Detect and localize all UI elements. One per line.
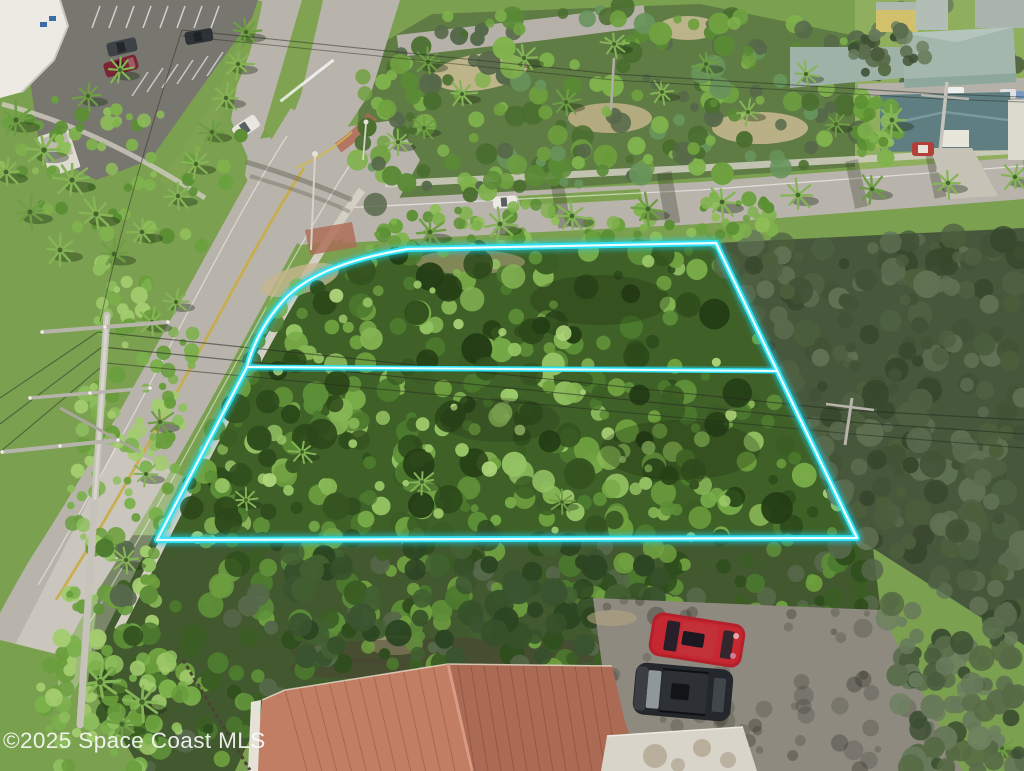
driveway-shadow (619, 596, 628, 605)
canopy-blob (178, 403, 187, 412)
canopy-blob (156, 111, 164, 119)
palm-crown (93, 211, 98, 216)
canopy-blob (309, 521, 320, 532)
canopy-blob (422, 181, 433, 192)
canopy-blob (75, 123, 84, 132)
driveway-shadow (859, 670, 868, 679)
canopy-blob (501, 264, 525, 288)
canopy-blob (816, 130, 833, 147)
driveway-shadow (864, 610, 870, 616)
driveway-shadow (603, 603, 612, 612)
canopy-blob (63, 664, 75, 676)
insulator (148, 386, 151, 389)
canopy-blob (539, 578, 567, 606)
canopy-blob (251, 669, 264, 682)
canopy-blob (263, 473, 277, 487)
canopy-blob (481, 619, 509, 647)
canopy-blob (726, 222, 740, 236)
canopy-blob (909, 629, 924, 644)
canopy-blob (1000, 647, 1022, 669)
driveway-shadow (787, 750, 798, 761)
canopy-blob (777, 459, 787, 469)
palm-frond (142, 702, 143, 722)
canopy-blob (627, 137, 645, 155)
garage-doors (941, 130, 969, 147)
canopy-blob (124, 477, 132, 485)
canopy-blob (361, 640, 375, 654)
canopy-blob (495, 10, 507, 22)
aerial-photo-canvas: ©2025 Space Coast MLS (0, 0, 1024, 771)
palm-crown (460, 92, 464, 96)
canopy-blob (455, 443, 469, 457)
canopy-blob (1003, 710, 1020, 727)
canopy-blob (217, 159, 231, 173)
canopy-blob (642, 255, 654, 267)
canopy-blob (295, 645, 318, 668)
canopy-blob (400, 72, 418, 90)
canopy-blob (407, 210, 419, 222)
canopy-blob (673, 114, 685, 126)
canopy-blob (613, 553, 634, 574)
canopy-blob (136, 417, 144, 425)
canopy-blob (364, 193, 387, 216)
canopy-blob (42, 203, 53, 214)
canopy-blob (218, 175, 233, 190)
canopy-blob (508, 309, 524, 325)
canopy-blob (483, 171, 502, 190)
palm-crown (224, 96, 228, 100)
canopy-blob (429, 287, 435, 293)
canopy-blob (861, 68, 870, 77)
canopy-blob (110, 584, 133, 607)
canopy-blob (90, 383, 98, 391)
canopy-blob (181, 624, 207, 650)
canopy-blob (256, 390, 280, 414)
palm-crown (210, 130, 214, 134)
canopy-blob (148, 548, 160, 560)
canopy-blob (169, 600, 181, 612)
canopy-blob (482, 461, 498, 477)
palm-crown (834, 122, 838, 126)
canopy-blob (433, 508, 443, 518)
canopy-blob (728, 17, 741, 30)
canopy-blob (313, 410, 321, 418)
canopy-blob (544, 342, 556, 354)
canopy-blob (329, 289, 343, 303)
parked-car (1016, 91, 1024, 99)
canopy-blob (159, 383, 166, 390)
canopy-blob (186, 327, 200, 341)
canopy-blob (205, 470, 218, 483)
canopy-blob (247, 583, 270, 606)
canopy-blob (551, 217, 560, 226)
canopy-blob (101, 645, 113, 657)
yellow-house-roof (876, 2, 918, 10)
suv-sunroof (670, 683, 689, 701)
canopy-blob (572, 156, 585, 169)
canopy-blob (76, 423, 90, 437)
canopy-blob (454, 207, 462, 215)
canopy-blob (788, 452, 801, 465)
canopy-blob (710, 99, 718, 107)
canopy-blob (72, 603, 81, 612)
palm-crown (58, 248, 63, 253)
canopy-blob (982, 617, 1005, 640)
canopy-blob (723, 378, 752, 407)
canopy-blob (766, 542, 781, 557)
driveway-shadow (831, 629, 838, 636)
black-suv (632, 662, 734, 722)
canopy-blob (144, 179, 156, 191)
canopy-blob (291, 502, 303, 514)
canopy-blob (469, 133, 479, 143)
canopy-blob (355, 135, 371, 151)
canopy-blob (904, 602, 922, 620)
canopy-blob (719, 495, 731, 507)
canopy-blob (180, 228, 192, 240)
canopy-blob (463, 187, 478, 202)
canopy-blob (974, 700, 996, 722)
palm-crown (498, 222, 503, 227)
canopy-blob (376, 411, 390, 425)
palm-frond (509, 58, 524, 59)
canopy-blob (513, 23, 525, 35)
canopy-blob (460, 287, 484, 311)
canopy-blob (471, 504, 479, 512)
canopy-blob (460, 30, 468, 38)
driveway-shadow (795, 735, 806, 746)
palm-frond (30, 194, 31, 212)
palm-frond (781, 195, 798, 196)
palm-crown (236, 62, 240, 66)
canopy-blob (916, 41, 929, 54)
driveway-shadow (864, 685, 880, 701)
canopy-blob (690, 103, 699, 112)
canopy-blob (768, 475, 778, 485)
canopy-blob (109, 293, 122, 306)
palm-crown (746, 110, 750, 114)
canopy-blob (373, 286, 384, 297)
canopy-blob (860, 34, 869, 43)
canopy-blob (633, 231, 641, 239)
canopy-blob (558, 8, 569, 19)
canopy-blob (926, 672, 945, 691)
canopy-blob (36, 683, 45, 692)
palm-crown (660, 90, 664, 94)
canopy-blob (427, 74, 442, 89)
blue-sign (49, 16, 56, 21)
canopy-blob (444, 154, 460, 170)
canopy-blob (375, 481, 385, 491)
canopy-blob (378, 100, 397, 119)
canopy-blob (347, 150, 368, 171)
palm-crown (422, 126, 426, 130)
driveway-shadow (844, 740, 864, 760)
canopy-blob (124, 498, 135, 509)
canopy-blob (413, 589, 432, 608)
palm-crown (86, 94, 90, 98)
canopy-blob (108, 366, 125, 383)
canopy-blob (908, 673, 923, 688)
canopy-blob (676, 292, 701, 317)
palm-crown (69, 177, 74, 182)
canopy-blob (708, 13, 730, 35)
canopy-blob (610, 113, 631, 134)
canopy-blob (943, 696, 961, 714)
canopy-blob (580, 389, 586, 395)
canopy-blob (877, 149, 895, 167)
canopy-blob (748, 206, 759, 217)
canopy-blob (592, 385, 607, 400)
driveway-shadow (756, 746, 763, 753)
canopy-blob (696, 223, 708, 235)
canopy-blob (416, 417, 430, 431)
white-wall (1008, 100, 1024, 160)
canopy-blob (408, 492, 434, 518)
palm-crown (570, 214, 575, 219)
palm-crown (119, 721, 124, 726)
canopy-blob (170, 463, 181, 474)
palm-frond (722, 202, 723, 219)
canopy-blob (639, 477, 652, 490)
canopy-blob (434, 25, 448, 39)
canopy-blob (607, 216, 620, 229)
canopy-blob (42, 658, 58, 674)
canopy-blob (984, 751, 1004, 771)
canopy-blob (442, 11, 453, 22)
canopy-blob (117, 303, 129, 315)
canopy-blob (95, 539, 114, 558)
streetlight-head (364, 120, 369, 125)
driveway-shadow (860, 752, 877, 769)
driveway-shadow (797, 706, 814, 723)
canopy-blob (209, 573, 234, 598)
canopy-blob (493, 104, 505, 116)
canopy-blob (414, 281, 422, 289)
canopy-blob (673, 15, 681, 23)
canopy-blob (126, 139, 138, 151)
canopy-blob (457, 172, 472, 187)
canopy-blob (728, 108, 741, 121)
canopy-blob (84, 456, 94, 466)
canopy-blob (545, 613, 566, 634)
canopy-shadow (530, 275, 670, 325)
canopy-blob (597, 164, 609, 176)
canopy-blob (125, 488, 133, 496)
canopy-blob (756, 96, 765, 105)
canopy-blob (296, 308, 307, 319)
canopy-blob (171, 686, 189, 704)
far-right-roof (975, 0, 1024, 28)
canopy-blob (867, 143, 876, 152)
canopy-blob (924, 737, 945, 758)
canopy-blob (189, 187, 198, 196)
canopy-blob (55, 202, 68, 215)
canopy-blob (734, 575, 746, 587)
canopy-blob (264, 621, 278, 635)
canopy-blob (794, 21, 812, 39)
canopy-blob (854, 95, 868, 109)
canopy-blob (96, 297, 109, 310)
canopy-blob (76, 518, 90, 532)
canopy-blob (288, 613, 312, 637)
canopy-blob (155, 441, 163, 449)
insulator (88, 391, 91, 394)
canopy-blob (497, 143, 513, 159)
canopy-blob (456, 574, 477, 595)
canopy-blob (99, 226, 115, 242)
driveway-shadow (660, 716, 667, 723)
canopy-blob (283, 485, 294, 496)
palm-crown (41, 147, 47, 153)
canopy-blob (247, 426, 272, 451)
canopy-blob (529, 251, 543, 265)
canopy-blob (51, 96, 59, 104)
canopy-blob (360, 327, 383, 350)
canopy-blob (146, 714, 160, 728)
canopy-blob (66, 591, 73, 598)
canopy-blob (909, 718, 931, 740)
watermark-text: ©2025 Space Coast MLS (3, 728, 266, 753)
canopy-blob (467, 234, 476, 243)
canopy-blob (541, 203, 556, 218)
canopy-blob (137, 114, 151, 128)
canopy-blob (165, 650, 178, 663)
canopy-blob (32, 167, 39, 174)
canopy-blob (648, 507, 659, 518)
canopy-blob (640, 224, 648, 232)
insulator (166, 320, 169, 323)
palm-crown (428, 230, 433, 235)
canopy-blob (323, 493, 351, 521)
canopy-blob (140, 586, 159, 605)
canopy-blob (807, 506, 818, 517)
canopy-blob (362, 490, 377, 505)
canopy-blob (363, 456, 376, 469)
canopy-blob (67, 502, 75, 510)
driveway-shadow (753, 726, 763, 736)
palm-crown (28, 210, 33, 215)
canopy-blob (763, 202, 775, 214)
canopy-blob (556, 325, 572, 341)
canopy-blob (45, 689, 63, 707)
palm-crown (946, 181, 950, 185)
insulator (28, 396, 31, 399)
canopy-blob (643, 154, 653, 164)
palm-crown (704, 62, 708, 66)
canopy-blob (610, 10, 627, 27)
canopy-blob (507, 155, 527, 175)
canopy-blob (358, 86, 373, 101)
canopy-blob (687, 142, 700, 155)
canopy-blob (498, 328, 506, 336)
canopy-blob (1003, 687, 1014, 698)
canopy-blob (74, 400, 88, 414)
canopy-blob (403, 480, 410, 487)
streetlight-head (312, 151, 318, 157)
canopy-blob (93, 603, 105, 615)
canopy-blob (799, 160, 809, 170)
canopy-blob (508, 343, 522, 357)
driveway-shadow (786, 609, 796, 619)
canopy-blob (145, 152, 156, 163)
canopy-blob (390, 318, 407, 335)
canopy-blob (207, 652, 228, 673)
canopy-blob (71, 464, 85, 478)
canopy-blob (599, 410, 609, 420)
canopy-blob (358, 511, 375, 528)
roof-stain (643, 744, 667, 768)
palm-crown (4, 170, 9, 175)
canopy-blob (432, 213, 445, 226)
canopy-blob (240, 628, 259, 647)
canopy-blob (532, 317, 550, 335)
canopy-blob (582, 555, 607, 580)
canopy-blob (775, 435, 795, 455)
canopy-blob (195, 146, 201, 152)
canopy-blob (425, 553, 450, 578)
canopy-blob (505, 577, 533, 605)
driveway-shadow (853, 619, 872, 638)
canopy-blob (563, 77, 582, 96)
canopy-blob (664, 220, 675, 231)
driveway-shadow (862, 720, 879, 737)
canopy-blob (989, 725, 1001, 737)
canopy-blob (739, 554, 753, 568)
canopy-blob (527, 602, 543, 618)
canopy-blob (113, 476, 122, 485)
roof-stain (720, 752, 736, 768)
canopy-blob (743, 46, 753, 56)
canopy-blob (220, 429, 238, 447)
canopy-blob (110, 103, 123, 116)
canopy-blob (327, 636, 345, 654)
palm-crown (646, 207, 651, 212)
canopy-blob (121, 276, 133, 288)
insulator (58, 444, 61, 447)
palm-crown (300, 450, 304, 454)
canopy-blob (889, 693, 911, 715)
canopy-blob (649, 22, 672, 45)
canopy-blob (761, 492, 793, 524)
canopy-blob (405, 89, 421, 105)
driveway-shadow (794, 686, 814, 706)
canopy-blob (355, 69, 370, 84)
canopy-blob (91, 594, 98, 601)
canopy-blob (658, 544, 677, 563)
canopy-blob (195, 239, 209, 253)
palm-crown (420, 480, 424, 484)
palm-crown (194, 162, 198, 166)
canopy-blob (593, 492, 607, 506)
canopy-blob (825, 101, 837, 113)
canopy-blob (713, 35, 734, 56)
canopy-blob (633, 555, 655, 577)
canopy-blob (390, 54, 410, 74)
palm-crown (118, 68, 122, 72)
sand-patch (587, 610, 637, 626)
driveway-shadow (875, 746, 882, 753)
canopy-blob (437, 145, 449, 157)
canopy-blob (112, 120, 120, 128)
canopy-blob (326, 395, 343, 412)
palm-crown (522, 56, 526, 60)
canopy-blob (530, 199, 542, 211)
canopy-blob (566, 652, 579, 665)
canopy-blob (551, 527, 558, 534)
canopy-blob (86, 139, 98, 151)
roof-stain (693, 739, 711, 757)
